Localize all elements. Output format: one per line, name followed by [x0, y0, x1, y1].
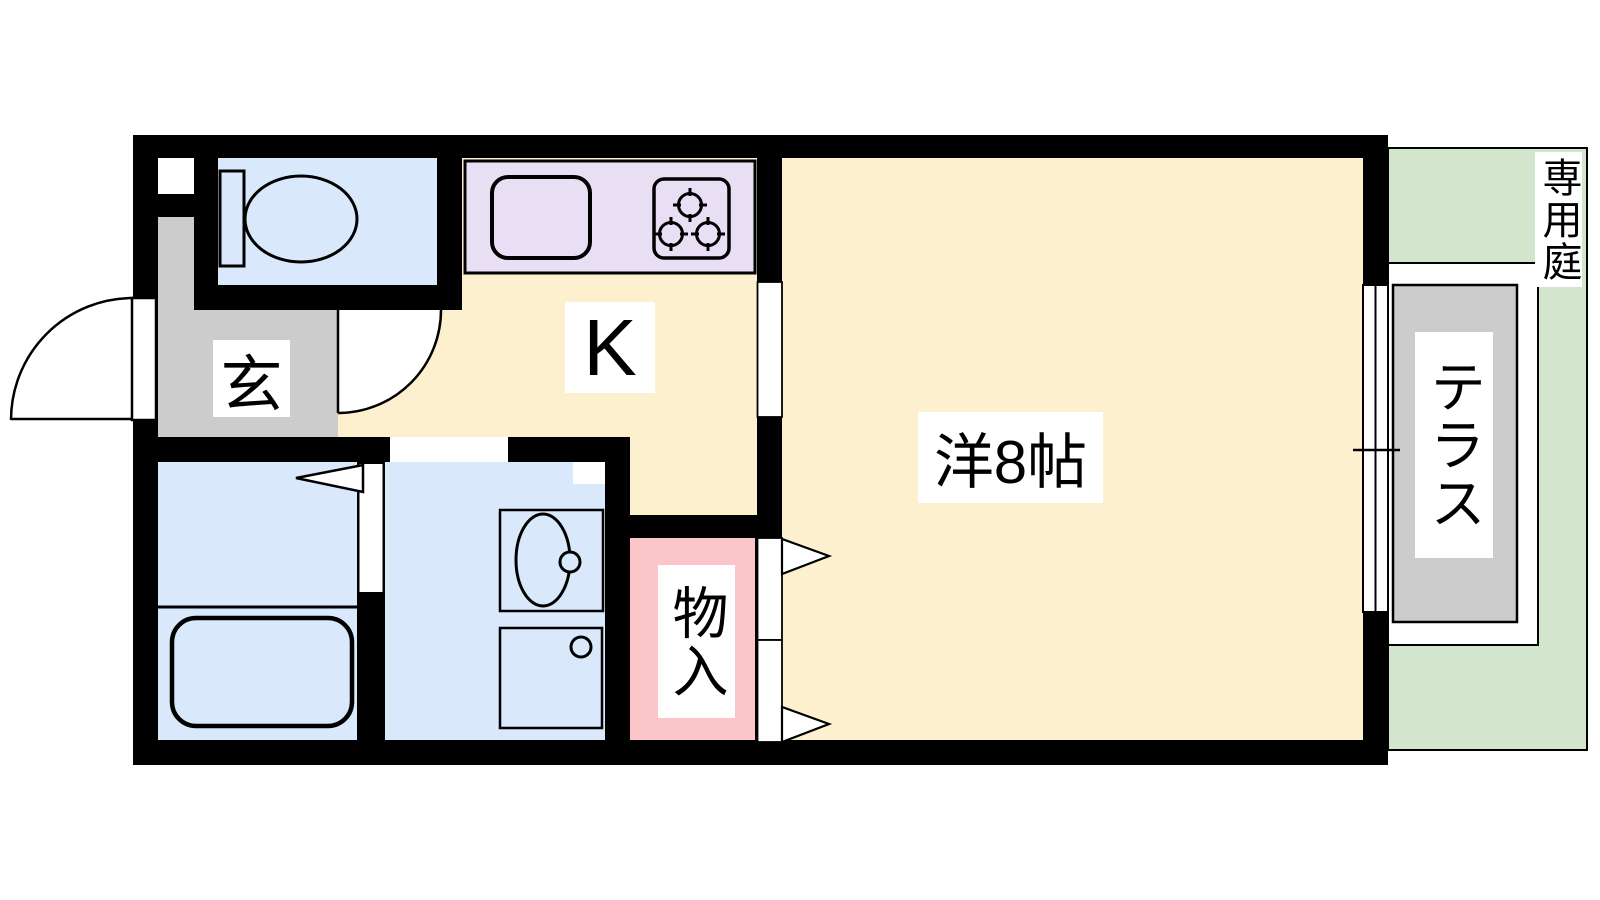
label-entrance: 玄 [213, 340, 290, 417]
washroom-wall-niche [573, 462, 605, 484]
bathroom-floor [158, 462, 357, 740]
label-western-room: 洋8帖 [918, 412, 1103, 503]
kitchen-label-text: K [583, 302, 636, 394]
label-terrace: テラス [1415, 332, 1493, 558]
kitchen-floor-lower [630, 437, 757, 515]
kitchen-washroom-opening [390, 437, 508, 462]
label-closet: 物入 [658, 565, 735, 718]
label-kitchen: K [565, 302, 655, 393]
entrance-floor-strip [158, 217, 194, 310]
western-room-label-text: 洋8帖 [934, 414, 1087, 501]
private-garden-label-text: 専用庭 [1530, 157, 1588, 283]
terrace-label-text: テラス [1414, 358, 1495, 532]
kitchen-room-sliding-door [758, 282, 783, 417]
toilet-icon [220, 171, 357, 266]
floor-plan-canvas: 玄 K 洋8帖 物入 テラス 専用庭 [0, 0, 1600, 900]
washbasin-icon [500, 510, 603, 611]
washing-machine-pan-icon [500, 628, 602, 728]
corner-window-niche [158, 158, 194, 194]
closet-label-text: 物入 [656, 584, 737, 700]
entrance-label-text: 玄 [220, 334, 282, 424]
label-private-garden: 専用庭 [1535, 152, 1582, 287]
kitchen-counter [465, 161, 755, 273]
floor-plan-drawing [0, 0, 1600, 900]
entry-door-swing-icon [11, 298, 156, 420]
